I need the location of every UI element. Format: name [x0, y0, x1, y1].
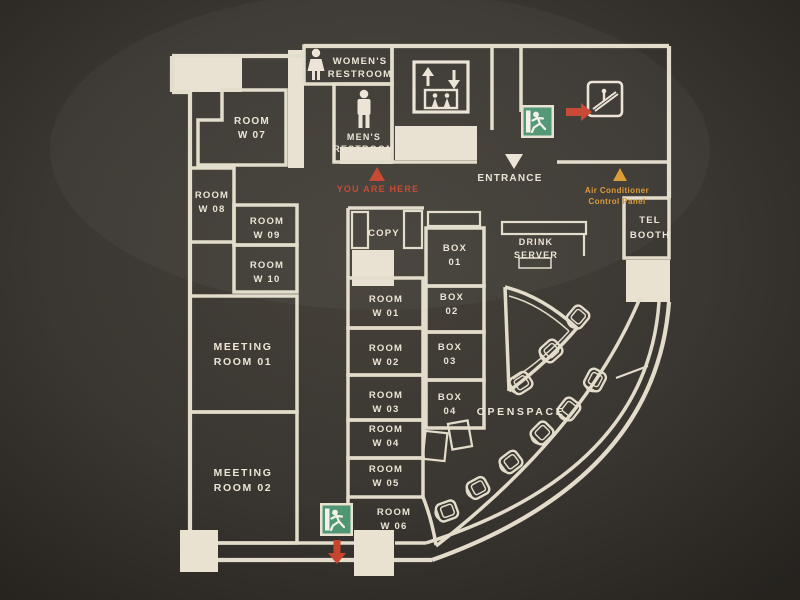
meeting-room-01-label: MEETING: [213, 341, 272, 353]
meeting-room-02-label: MEETING: [213, 467, 272, 479]
pillar-bottom-center: [354, 530, 394, 576]
floor-map-photo: WOMEN'S RESTROOM MEN'S RESTROOM YOU ARE …: [0, 0, 800, 600]
svg-text:W 05: W 05: [373, 478, 400, 489]
box-04-label: BOX: [438, 392, 462, 403]
box-03-label: BOX: [438, 342, 462, 353]
room-w04-label: ROOM: [369, 424, 403, 435]
exit-icon-bottom: [320, 503, 353, 536]
photo-glare: [50, 0, 710, 310]
svg-text:W 02: W 02: [373, 357, 400, 368]
room-w06-label: ROOM: [377, 507, 411, 518]
svg-text:04: 04: [444, 406, 457, 417]
svg-text:W 06: W 06: [381, 521, 408, 532]
svg-text:W 04: W 04: [373, 438, 400, 449]
openspace-label: OPENSPACE: [477, 406, 566, 418]
svg-text:W 03: W 03: [373, 404, 400, 415]
floor-plan-svg: WOMEN'S RESTROOM MEN'S RESTROOM YOU ARE …: [0, 0, 800, 600]
svg-text:02: 02: [446, 306, 459, 317]
pillar-bottom-left: [180, 530, 218, 572]
room-w02-label: ROOM: [369, 343, 403, 354]
room-w03-label: ROOM: [369, 390, 403, 401]
svg-text:ROOM 02: ROOM 02: [214, 482, 272, 494]
svg-text:ROOM 01: ROOM 01: [214, 356, 272, 368]
svg-text:03: 03: [444, 356, 457, 367]
room-w05-label: ROOM: [369, 464, 403, 475]
tel-booth-pillar: [626, 260, 670, 302]
